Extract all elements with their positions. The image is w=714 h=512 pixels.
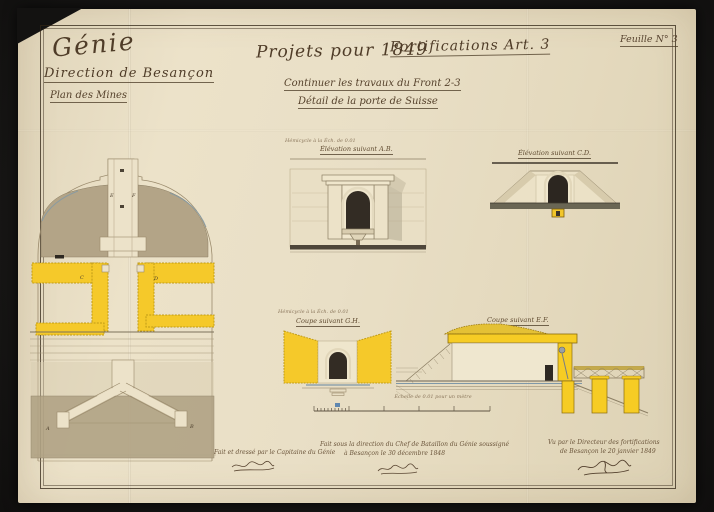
- coupe-gh-figure: [280, 327, 395, 415]
- fortifications-title: Fortifications Art. 3: [390, 38, 551, 58]
- door-opening: [329, 352, 347, 379]
- ink-mark: [55, 255, 64, 259]
- signature-scribble: [230, 459, 276, 473]
- tunnel-opening: [548, 175, 568, 203]
- elevation-ab-caption: Élévation suivant A.B.: [320, 146, 393, 155]
- supervised-note-line1: Fait sous la direction du Chef de Batail…: [320, 442, 509, 449]
- pier-foundation: [562, 381, 574, 413]
- detail-line: Détail de la porte de Suisse: [298, 96, 438, 109]
- ground-line: [290, 245, 426, 250]
- signature-scribble: [574, 458, 634, 478]
- slope-hatching: [406, 344, 450, 384]
- gate-plan-detail: [102, 265, 144, 272]
- elevation-cd-figure: [490, 159, 620, 223]
- svg-text:D: D: [153, 276, 158, 282]
- svg-text:B: B: [189, 424, 194, 430]
- doorway-opening: [545, 365, 553, 381]
- approved-note-line2: de Besançon le 20 janvier 1849: [560, 449, 656, 456]
- earth-mound: [445, 324, 548, 334]
- covered-way-lines: [30, 332, 214, 360]
- scan-backdrop: Génie Direction de Besançon Plan des Min…: [0, 0, 714, 512]
- elevation-cd-caption: Élévation suivant C.D.: [518, 150, 591, 159]
- scale-bar-caption: Échelle de 0.01 pour un mètre: [378, 395, 488, 401]
- mine-shaft: [112, 360, 134, 388]
- coupe-gh-caption: Coupe suivant G.H.: [296, 318, 360, 327]
- drawing-sheet: Génie Direction de Besançon Plan des Min…: [18, 9, 696, 503]
- work-line: Continuer les travaux du Front 2-3: [284, 78, 461, 91]
- drafted-note: Fait et dressé par le Capitaine du Génie: [214, 450, 335, 457]
- approved-note-line1: Vu par le Directeur des fortifications: [548, 440, 660, 447]
- plan-des-mines-figure: A B C D E F: [28, 149, 240, 471]
- steps: [330, 389, 346, 396]
- signature-scribble: [376, 462, 420, 476]
- elevation-ab-figure: [288, 155, 428, 259]
- masonry-roof-slab: [448, 334, 577, 343]
- supervised-note-line2: à Besançon le 30 décembre 1848: [344, 451, 445, 458]
- niche-opening: [346, 191, 370, 229]
- scale-bar: [312, 404, 492, 416]
- coupe-gh-scale-note: Hémicycle à la Éch. de 0.01: [278, 310, 349, 316]
- svg-text:E: E: [109, 193, 114, 199]
- elevation-ab-scale-note: Hémicycle à la Éch. de 0.01: [285, 139, 356, 145]
- gate-portal: [322, 175, 394, 240]
- plan-subtitle: Plan des Mines: [50, 90, 127, 103]
- svg-text:F: F: [131, 193, 136, 199]
- ground-band: [490, 203, 620, 209]
- bridge-structure: [574, 367, 644, 414]
- sheet-number: Feuille N° 3: [620, 35, 678, 47]
- new-masonry-yellow: [32, 263, 214, 335]
- svg-text:C: C: [80, 275, 84, 281]
- svg-text:A: A: [45, 426, 50, 432]
- cast-shadow: [388, 185, 402, 241]
- direction-title: Direction de Besançon: [44, 67, 214, 83]
